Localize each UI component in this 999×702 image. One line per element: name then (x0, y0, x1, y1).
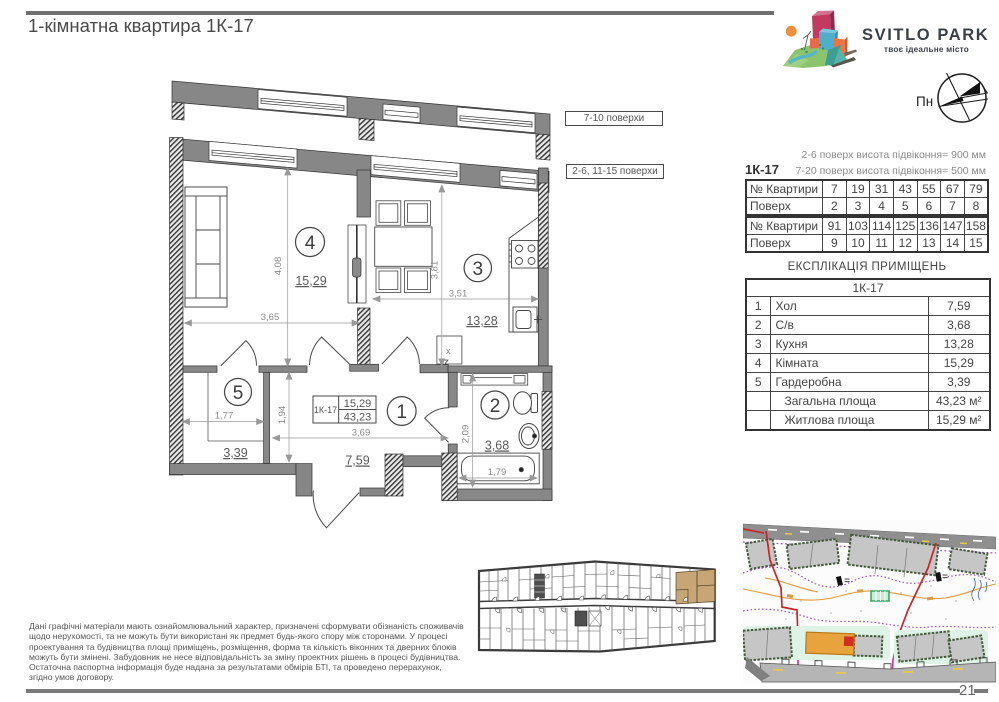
svg-text:15,29: 15,29 (344, 398, 372, 410)
svg-text:x: x (446, 346, 451, 356)
svg-text:1,79: 1,79 (488, 467, 507, 478)
svg-text:5: 5 (233, 383, 244, 404)
svg-text:2,09: 2,09 (461, 425, 472, 444)
svg-text:1,77: 1,77 (215, 411, 234, 422)
svg-text:3,69: 3,69 (352, 428, 371, 439)
svg-text:3: 3 (473, 259, 484, 280)
svg-text:3,81: 3,81 (430, 261, 441, 280)
svg-text:13,28: 13,28 (466, 314, 497, 328)
svg-text:1К-17: 1К-17 (314, 405, 337, 415)
svg-text:4: 4 (305, 233, 316, 254)
svg-text:1,94: 1,94 (277, 406, 288, 425)
svg-text:3,51: 3,51 (449, 289, 468, 300)
svg-text:15,29: 15,29 (295, 274, 326, 288)
svg-text:7,59: 7,59 (345, 454, 369, 468)
svg-text:2: 2 (490, 396, 501, 417)
svg-text:1: 1 (396, 402, 407, 423)
svg-text:43,23: 43,23 (344, 412, 372, 424)
svg-text:4,08: 4,08 (273, 257, 284, 276)
svg-text:3,39: 3,39 (223, 446, 247, 460)
svg-text:3,68: 3,68 (485, 439, 509, 453)
svg-text:3,65: 3,65 (261, 312, 280, 323)
